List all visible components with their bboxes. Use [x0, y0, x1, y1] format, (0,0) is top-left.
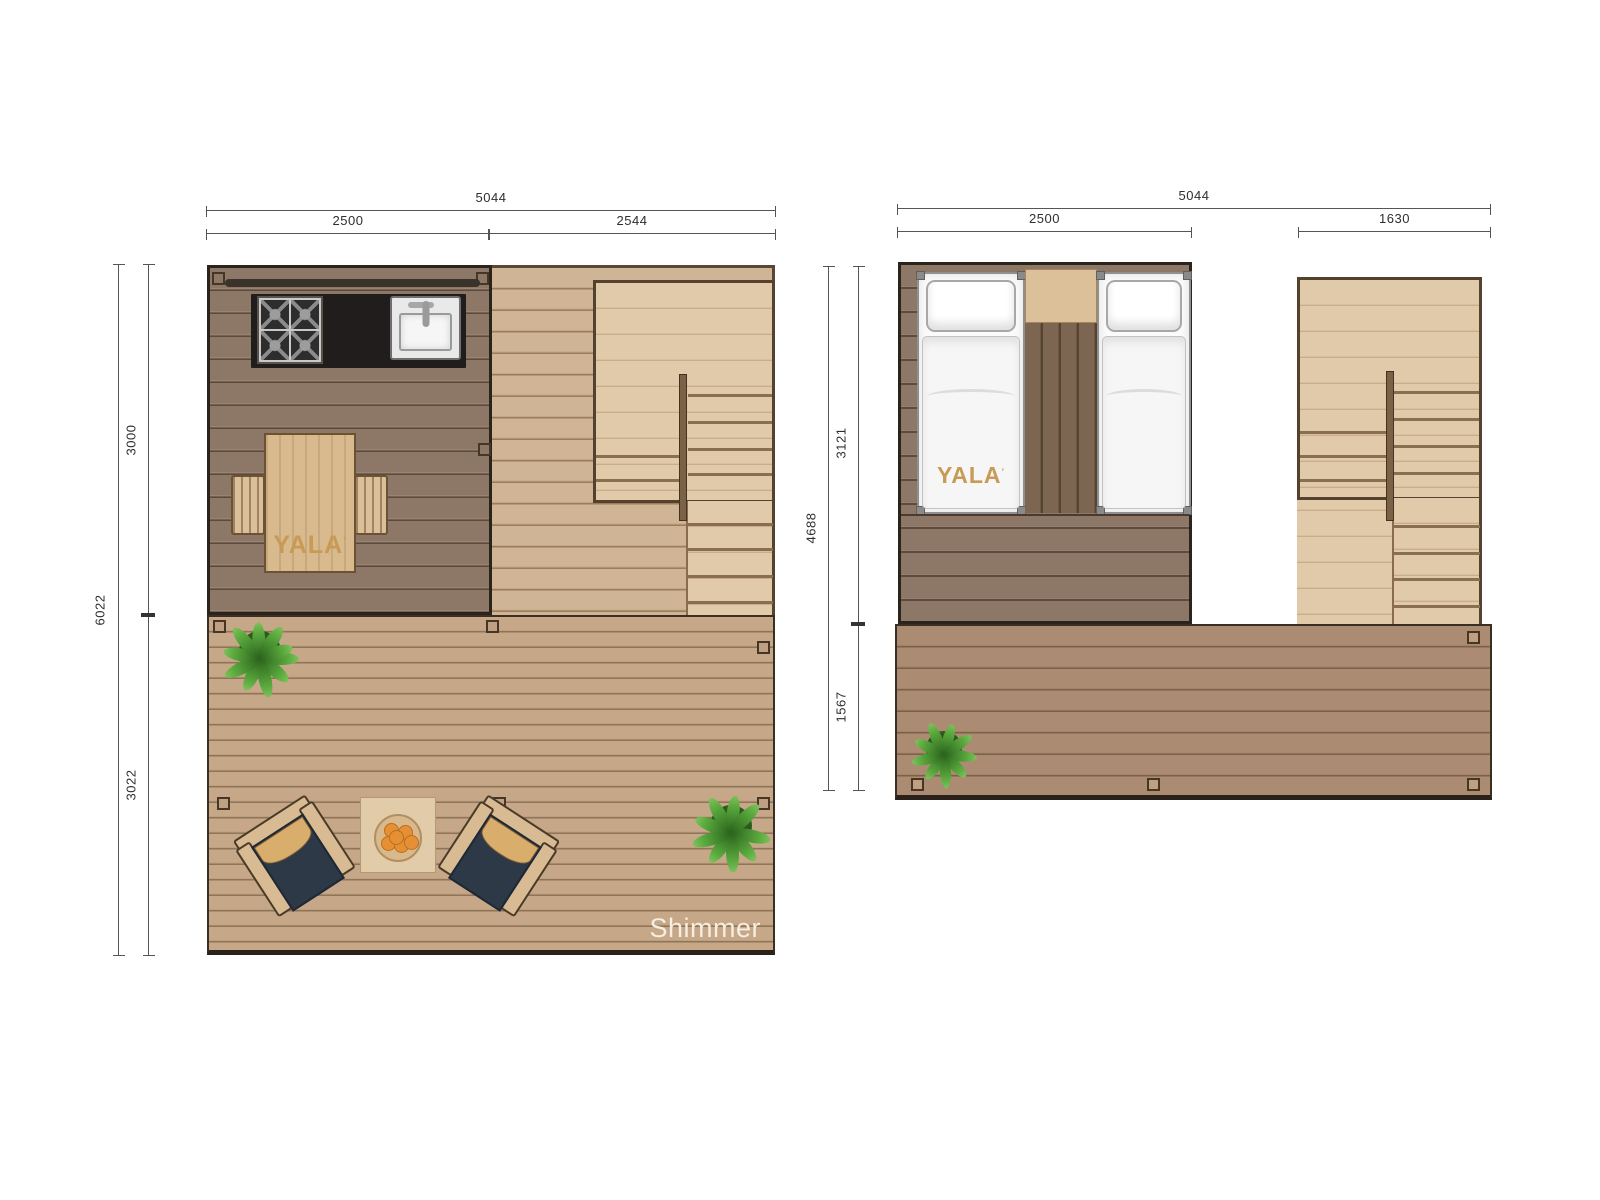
- deck-connector: [1147, 778, 1160, 791]
- wall-bracket: [212, 272, 225, 285]
- yala-logo-table: YALAʼ: [266, 531, 354, 560]
- dim-label-width-right: 2544: [489, 213, 775, 228]
- dim-label-width-left: 2500: [898, 211, 1191, 226]
- kitchen-wall-rail: [225, 279, 480, 287]
- stair-step: [688, 601, 773, 604]
- stair-step: [1300, 479, 1386, 482]
- deck-connector: [1467, 631, 1480, 644]
- dim-line-width-right: [489, 233, 775, 234]
- stair-step: [1300, 455, 1386, 458]
- stair-step: [688, 394, 772, 397]
- floorplan-canvas: 5044 2500 2544 6022 3000 3022: [0, 0, 1600, 1200]
- lounge-chair-left: [230, 793, 359, 924]
- dim-line-height-top: [858, 267, 859, 624]
- dim-label-total-height: 4688: [804, 513, 819, 544]
- stair-step: [688, 523, 773, 526]
- faucet-handle: [408, 302, 434, 308]
- burner: [261, 331, 289, 360]
- dim-split-tick: [851, 622, 865, 626]
- pillow: [926, 280, 1016, 332]
- stair-step: [596, 479, 680, 482]
- stair-step: [1394, 418, 1479, 421]
- deck-connector: [757, 641, 770, 654]
- stair-step: [1394, 472, 1479, 475]
- cabin-interior: YALAʼ: [207, 265, 492, 615]
- deck-connector: [1467, 778, 1480, 791]
- bed-right: [1097, 272, 1191, 514]
- ground-deck: Shimmer: [207, 615, 775, 955]
- lounge-chair-right: [433, 793, 562, 924]
- stair-step: [1394, 445, 1479, 448]
- stair-step: [688, 473, 772, 476]
- dim-label-total-width: 5044: [207, 190, 775, 205]
- stair-rail: [1386, 371, 1394, 521]
- dim-label-height-bottom: 3022: [124, 770, 139, 801]
- yala-logo-bed: YALAʼ: [919, 462, 1023, 489]
- stove-icon: [257, 296, 323, 364]
- stair-rail: [679, 374, 687, 521]
- nightstand-panel: [1025, 269, 1097, 323]
- kitchen-counter: [251, 294, 466, 368]
- dim-line-total-height-right-plan: [828, 267, 829, 790]
- dim-line-width-left: [898, 231, 1191, 232]
- stair-step: [688, 575, 773, 578]
- deck-connector: [217, 797, 230, 810]
- stair-step: [688, 448, 772, 451]
- pillow: [1106, 280, 1182, 332]
- stair-step: [688, 548, 773, 551]
- bed-foot-line: [901, 514, 1189, 516]
- stair-step: [1300, 431, 1386, 434]
- dim-label-height-bottom: 1567: [834, 692, 849, 723]
- model-name-label: Shimmer: [649, 913, 761, 944]
- stair-step: [688, 421, 772, 424]
- stair-step: [1394, 525, 1480, 528]
- dim-line-total-width-left-plan: [207, 210, 775, 211]
- dim-line-total-width-right-plan: [898, 208, 1490, 209]
- center-floor-strip: [1025, 323, 1097, 513]
- bed-left: YALAʼ: [917, 272, 1025, 514]
- deck-connector: [486, 620, 499, 633]
- stair-step: [1394, 605, 1480, 608]
- dim-label-width-right: 1630: [1299, 211, 1490, 226]
- stair-step: [1394, 391, 1479, 394]
- side-table: [360, 797, 436, 873]
- dim-label-total-height: 6022: [93, 595, 108, 626]
- dim-line-height-bottom: [858, 624, 859, 790]
- dim-line-height-top: [148, 265, 149, 615]
- plant-icon: [907, 712, 981, 786]
- logo-mark: ʼ: [1001, 466, 1005, 476]
- yala-logo-text: YALA: [273, 531, 343, 559]
- burner: [261, 300, 289, 329]
- fruit-plate: [374, 814, 422, 862]
- dim-line-total-height-left-plan: [118, 265, 119, 955]
- stair-step: [596, 455, 680, 458]
- yala-logo-text: YALA: [937, 462, 1002, 488]
- dim-label-height-top: 3121: [834, 428, 849, 459]
- plant-icon: [217, 609, 303, 695]
- sink-icon: [390, 296, 461, 360]
- loft-deck: [895, 624, 1492, 800]
- loft-stair-block: [1297, 277, 1482, 624]
- dim-line-width-right: [1299, 231, 1490, 232]
- bedroom: YALAʼ: [898, 262, 1192, 624]
- stair-step: [1394, 578, 1480, 581]
- dim-split-tick: [141, 613, 155, 617]
- dim-line-width-left: [207, 233, 489, 234]
- logo-mark: ʼ: [343, 536, 347, 546]
- duvet: [1102, 336, 1186, 509]
- dining-chair-left: [231, 475, 265, 535]
- burner: [291, 331, 319, 360]
- stair-step: [1394, 552, 1480, 555]
- dining-chair-right: [354, 475, 388, 535]
- dim-line-height-bottom: [148, 615, 149, 955]
- dim-label-width-left: 2500: [207, 213, 489, 228]
- stair-zone: [492, 265, 775, 615]
- dim-label-height-top: 3000: [124, 425, 139, 456]
- faucet-icon: [422, 301, 429, 327]
- dim-label-total-width: 5044: [898, 188, 1490, 203]
- dining-table: YALAʼ: [264, 433, 356, 573]
- plant-icon: [687, 782, 775, 870]
- wall-connector: [478, 443, 491, 456]
- burner: [291, 300, 319, 329]
